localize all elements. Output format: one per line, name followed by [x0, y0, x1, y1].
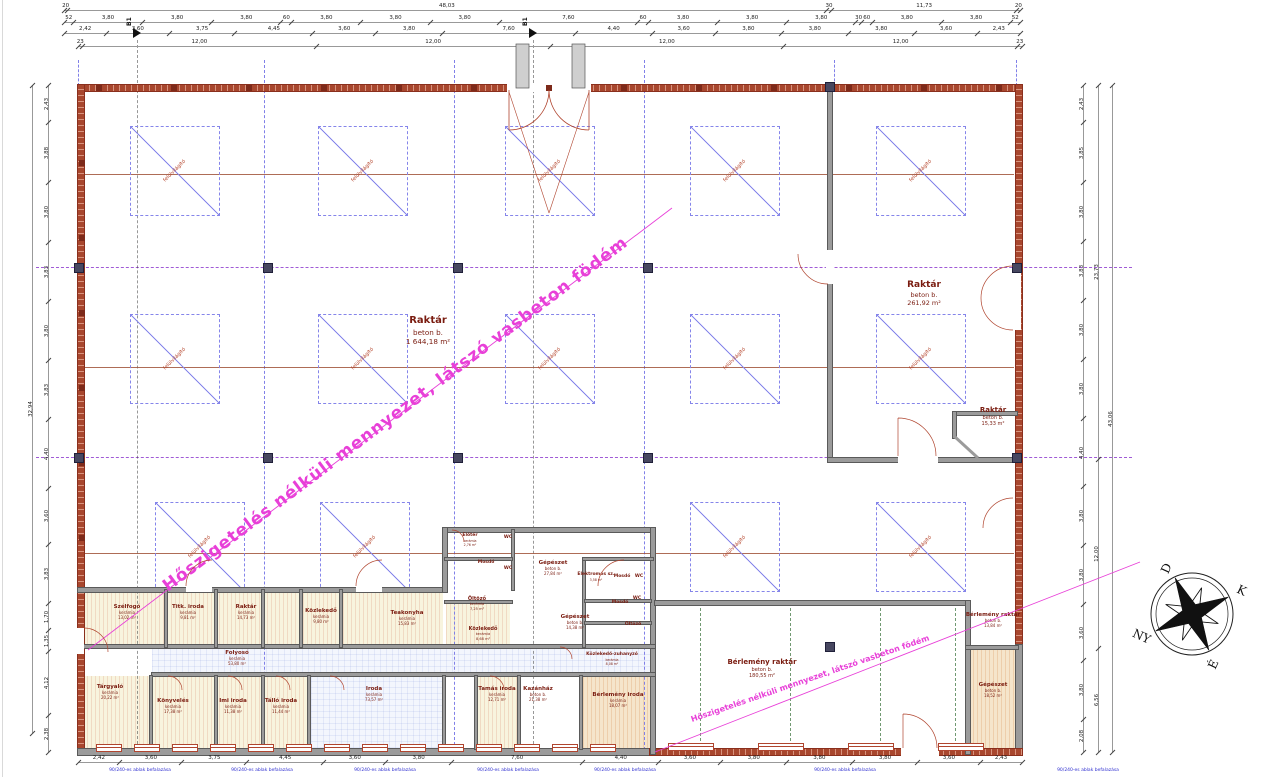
pilaster	[79, 535, 85, 541]
dim-right-mid	[1098, 85, 1099, 752]
dim-label: 3,60	[137, 755, 165, 761]
skylight-label: felülvilágító	[909, 159, 934, 184]
column	[644, 264, 652, 272]
room-area: 21,38 m²	[523, 698, 553, 703]
partition	[308, 676, 310, 749]
dim-label: 30	[815, 3, 843, 9]
dim-label: 7,60	[503, 755, 531, 761]
wall-east	[1016, 85, 1022, 647]
column	[264, 264, 272, 272]
pilaster	[321, 85, 327, 91]
dim-label: 3,80	[405, 755, 433, 761]
utility-line	[955, 608, 956, 746]
room-label: Kazánházbeton b.21,38 m²	[523, 686, 553, 703]
room-label: Gépészetbeton b.18,52 m²	[979, 682, 1008, 699]
dim-label: 3,60	[676, 755, 704, 761]
dim-label: 3,80	[1079, 198, 1085, 226]
skylight: felülvilágító	[690, 314, 780, 404]
dim-label: 2,08	[1079, 722, 1085, 750]
pilaster	[546, 85, 552, 91]
window-mark	[248, 744, 274, 752]
dim-label: 23	[1006, 39, 1034, 45]
wall-utility-left	[443, 528, 447, 592]
window-mark	[590, 744, 616, 752]
wall-opening	[826, 250, 834, 284]
room-area: 13,84 m²	[966, 624, 1020, 629]
pilaster	[996, 85, 1002, 91]
partition	[583, 558, 653, 560]
room-label: Tárgyalókerámia20,22 m²	[97, 684, 123, 701]
pilaster	[79, 160, 85, 166]
dim-top-inner	[64, 33, 1020, 34]
pilaster	[621, 85, 627, 91]
compass-major-star	[1156, 578, 1228, 650]
wall-opening	[898, 456, 938, 464]
dim-label: 3,80	[1079, 561, 1085, 589]
partition	[475, 676, 477, 749]
room-label: Raktárbeton b.1 644,18 m²	[406, 315, 450, 346]
room-label: Folyosókerámia53,80 m²	[225, 650, 249, 667]
room-area: 17,38 m²	[157, 710, 189, 715]
column	[1013, 264, 1021, 272]
window-annotation: 90/240-es ablak befalazása	[814, 768, 876, 773]
window-annotation: 90/240-es ablak befalazása	[477, 768, 539, 773]
window-mark	[362, 744, 388, 752]
pilaster	[171, 85, 177, 91]
room-label: Irodakerámia73,57 m²	[365, 686, 383, 703]
column	[454, 264, 462, 272]
room-area: 9,81 m²	[172, 616, 204, 621]
room-area: 13,02 m²	[114, 616, 141, 621]
wall-west	[78, 85, 84, 755]
dim-label: 48,03	[433, 3, 461, 9]
room-label: Gépészetbeton b.27,84 m²	[539, 560, 568, 577]
dim-label: 3,60	[330, 26, 358, 32]
room-area: 14,38 m²	[561, 626, 590, 631]
column	[264, 454, 272, 462]
dim-bottom	[78, 762, 1022, 763]
room-label: Raktárbeton b.15,33 m²	[980, 406, 1006, 427]
window-mark	[438, 744, 464, 752]
column	[75, 264, 83, 272]
dim-label: 4,12	[44, 669, 50, 697]
room-area: 53,80 m²	[225, 662, 249, 667]
dim-label: 3,80	[740, 755, 768, 761]
skylight-label: felülvilágító	[351, 159, 376, 184]
window-mark	[210, 744, 236, 752]
skylight: felülvilágító	[876, 126, 966, 216]
skylight: felülvilágító	[318, 314, 408, 404]
room-name: Közlekedő-zuhanyzó	[586, 652, 638, 658]
room-area: 3,58 m²	[577, 578, 614, 582]
room-label: WC	[635, 574, 643, 580]
dim-label: 2,43	[987, 755, 1015, 761]
room-area: 11,38 m²	[219, 710, 247, 715]
room-area: 27,84 m²	[539, 572, 568, 577]
column	[454, 454, 462, 462]
pilaster	[96, 85, 102, 91]
wall-opening	[901, 748, 939, 756]
dim-label: 60	[629, 15, 657, 21]
room-area: 2,76 m²	[462, 543, 477, 547]
wall-small-raktar-left	[953, 412, 956, 438]
dim-label: 3,88	[44, 139, 50, 167]
room-name: Raktár	[406, 315, 450, 328]
orange	[583, 676, 650, 748]
dim-label: 3,80	[738, 15, 766, 21]
dim-label: 12,00	[185, 39, 213, 45]
dim-label: 43,06	[1108, 405, 1114, 433]
dim-label: 4,40	[607, 755, 635, 761]
dim-label: 3,80	[734, 26, 762, 32]
room-label: Bérlemény raktárbeton b.13,84 m²	[966, 612, 1020, 629]
dim-label: 4,40	[1079, 439, 1085, 467]
pilaster	[79, 385, 85, 391]
column	[826, 83, 834, 91]
room-label: Öltözőkerámia7,25 m²	[468, 596, 486, 611]
room-name: Mosdó	[478, 560, 495, 566]
room-label: WC	[504, 566, 512, 572]
skylight: felülvilágító	[505, 314, 595, 404]
skylight: felülvilágító	[130, 314, 220, 404]
skylight: felülvilágító	[320, 502, 410, 592]
skylight: felülvilágító	[690, 126, 780, 216]
dim-label: 3,75	[188, 26, 216, 32]
grid-axis-vertical	[1016, 60, 1017, 86]
skylight-label: felülvilágító	[723, 535, 748, 560]
column	[75, 454, 83, 462]
dim-label: 3,80	[893, 15, 921, 21]
window-mark	[286, 744, 312, 752]
skylight: felülvilágító	[876, 314, 966, 404]
room-label: Tamás irodakerámia12,71 m²	[478, 686, 515, 703]
dim-label: 4,40	[600, 26, 628, 32]
compass-label-d: D	[1158, 561, 1175, 576]
room-area: 261,92 m²	[907, 299, 941, 307]
room-label: Mosdó	[614, 574, 631, 580]
room-label: Teakonyhakerámia15,83 m²	[391, 610, 424, 627]
window-mark	[96, 744, 122, 752]
window-mark	[400, 744, 426, 752]
window-mark	[938, 743, 984, 751]
room-area: 7,25 m²	[468, 607, 486, 611]
dim-label: 52	[55, 15, 83, 21]
dim-label: 12,00	[1094, 540, 1100, 568]
skylight-label: felülvilágító	[538, 159, 563, 184]
window-annotation: 90/240-es ablak befalazása	[594, 768, 656, 773]
room-area: 14,73 m²	[236, 616, 257, 621]
pilaster	[79, 310, 85, 316]
room-label: Bérlemény irodakerámia18,07 m²	[592, 692, 643, 709]
dim-label: 3,80	[163, 15, 191, 21]
room-area: 1 644,18 m²	[406, 337, 450, 346]
window-annotation: 90/240-es ablak befalazása	[109, 768, 171, 773]
wall-opening	[76, 628, 84, 654]
partition	[262, 590, 264, 647]
skylight-label: felülvilágító	[163, 347, 188, 372]
room-label: Mosdó	[478, 560, 495, 566]
dim-label: 2,42	[71, 26, 99, 32]
room-material: beton b.	[907, 291, 941, 299]
skylight: felülvilágító	[318, 126, 408, 216]
room-label: WC	[633, 596, 641, 602]
skylight: felülvilágító	[505, 126, 595, 216]
dim-label: 3,83	[1079, 257, 1085, 285]
room-label: WC	[504, 535, 512, 541]
wall-opening	[356, 584, 382, 592]
canopy-column-right	[572, 44, 585, 88]
room-label: Imi irodakerámia11,38 m²	[219, 698, 247, 715]
room-label: Mosdó	[612, 600, 629, 606]
dim-label: 4,45	[260, 26, 288, 32]
dim-label: 3,60	[341, 755, 369, 761]
dim-label: 3,80	[1079, 676, 1085, 704]
dim-label: 12,00	[887, 39, 915, 45]
dim-top-total	[64, 10, 1020, 11]
room-area: 8,68 m²	[469, 637, 498, 641]
room-name: Bérlemény raktár	[727, 658, 796, 667]
room-area: 180,55 m²	[727, 673, 796, 679]
compass-label-k: K	[1235, 582, 1250, 599]
room-label: Előtérkerámia2,76 m²	[462, 533, 477, 547]
dim-label: 3,75	[200, 755, 228, 761]
room-name: Mosdó	[614, 574, 631, 580]
room-label: Könyveléskerámia17,38 m²	[157, 698, 189, 715]
room-name: WC	[504, 566, 512, 572]
dim-label: 3,80	[669, 15, 697, 21]
partition	[443, 676, 445, 749]
skylight: felülvilágító	[130, 126, 220, 216]
room-area: 18,52 m²	[979, 694, 1008, 699]
dim-label: 3,80	[807, 15, 835, 21]
dim-label: 3,80	[871, 755, 899, 761]
wall-opening	[1013, 266, 1021, 330]
window-mark	[514, 744, 540, 752]
skylight-label: felülvilágító	[723, 347, 748, 372]
partition	[340, 590, 342, 647]
wall-opening	[598, 584, 624, 592]
dim-label: 52	[1001, 15, 1029, 21]
dim-label: 3,85	[1079, 139, 1085, 167]
grid-axis-vertical	[78, 60, 79, 86]
skylight-label: felülvilágító	[909, 535, 934, 560]
window-mark	[552, 744, 578, 752]
room-label: Közlekedő-zuhanyzókerámia8,08 m²	[586, 652, 638, 666]
room-label: Raktárbeton b.261,92 m²	[907, 280, 941, 307]
room-name: Előtér	[462, 533, 477, 539]
pilaster	[396, 85, 402, 91]
dim-label: 3,80	[867, 26, 895, 32]
dim-label: 3,80	[395, 26, 423, 32]
room-name: Öltöző	[625, 622, 641, 628]
dim-label: 4,40	[44, 440, 50, 468]
window-mark	[476, 744, 502, 752]
window-mark	[758, 743, 804, 751]
angled-wall	[954, 436, 978, 458]
dim-label: 2,42	[85, 755, 113, 761]
dim-label: 3,80	[232, 15, 260, 21]
room-label: Közlekedőkerámia9,80 m²	[305, 608, 337, 625]
room-area: 18,07 m²	[592, 704, 643, 709]
dim-label: 23	[66, 39, 94, 45]
room-name: Raktár	[907, 280, 941, 291]
dim-label: 4,45	[271, 755, 299, 761]
room-area: 15,83 m²	[391, 622, 424, 627]
dim-label: 3,60	[932, 26, 960, 32]
skylight-label: felülvilágító	[723, 159, 748, 184]
column	[826, 643, 834, 651]
room-name: Mosdó	[612, 600, 629, 606]
dim-label: 20	[1004, 3, 1032, 9]
partition	[518, 676, 520, 749]
room-label: Raktárkerámia14,73 m²	[236, 604, 257, 621]
window-mark	[172, 744, 198, 752]
room-area: 9,80 m²	[305, 620, 337, 625]
partition	[512, 530, 514, 590]
pilaster	[846, 85, 852, 91]
dim-label: 3,80	[451, 15, 479, 21]
dim-label: 7,60	[495, 26, 523, 32]
pilaster	[921, 85, 927, 91]
dim-label: 2,43	[985, 26, 1013, 32]
pilaster	[471, 85, 477, 91]
grid-axis-horizontal	[36, 267, 1132, 268]
pilaster	[79, 235, 85, 241]
dim-label: 3,80	[1079, 502, 1085, 530]
compass-label-ny: NY	[1130, 626, 1154, 647]
room-label: Szélfogókerámia13,02 m²	[114, 604, 141, 621]
floor-plan-canvas: felülvilágítófelülvilágítófelülvilágítóf…	[0, 0, 1280, 777]
column	[1013, 454, 1021, 462]
skylight: felülvilágító	[690, 502, 780, 592]
dim-label: 3,80	[44, 317, 50, 345]
window-mark	[324, 744, 350, 752]
room-area: 8,08 m²	[586, 662, 638, 666]
wall-berlemeny-top	[655, 601, 970, 605]
room-label: Bérlemény raktárbeton b.180,55 m²	[727, 658, 796, 679]
dim-label: 20	[52, 3, 80, 9]
dim-label: 7,60	[554, 15, 582, 21]
wall-utility-top	[443, 528, 655, 532]
dim-label: 12,00	[653, 39, 681, 45]
page-edge	[2, 0, 3, 777]
dim-label: 23,73	[1094, 258, 1100, 286]
dim-label: 3,60	[124, 26, 152, 32]
column	[644, 454, 652, 462]
partition	[262, 676, 264, 749]
room-name: WC	[633, 596, 641, 602]
dim-top-detail	[64, 22, 1020, 23]
dim-label: 3,60	[935, 755, 963, 761]
room-area: 11,44 m²	[265, 710, 297, 715]
compass-rose: D K É NY	[1130, 561, 1249, 671]
pilaster	[771, 85, 777, 91]
room-label: Elektromos sz.3,58 m²	[577, 572, 614, 582]
dim-label: 3,80	[44, 198, 50, 226]
room-area: 12,71 m²	[478, 698, 515, 703]
ceiling-note-secondary: Hőszigetelés nélküli mennyezet, látszó v…	[689, 633, 930, 724]
dim-label: 2,43	[1079, 90, 1085, 118]
dim-label: 3,80	[801, 26, 829, 32]
wall-gepeszet-top	[966, 646, 1018, 649]
wall-east-lower	[1016, 645, 1022, 755]
room-area: 73,57 m²	[365, 698, 383, 703]
pilaster	[696, 85, 702, 91]
room-area: 20,22 m²	[97, 696, 123, 701]
dim-label: 60	[272, 15, 300, 21]
window-annotation: 90/240-es ablak befalazása	[231, 768, 293, 773]
room-label: Titk. irodakerámia9,81 m²	[172, 604, 204, 621]
dim-label: 3,60	[1079, 619, 1085, 647]
wall-office-right	[651, 528, 655, 754]
skylight-label: felülvilágító	[188, 535, 213, 560]
partition	[300, 590, 302, 647]
partition	[580, 676, 582, 749]
skylight-label: felülvilágító	[163, 159, 188, 184]
window-mark	[848, 743, 894, 751]
dim-label: 6,56	[1094, 686, 1100, 714]
dim-label: 3,80	[805, 755, 833, 761]
dim-label: 3,83	[44, 258, 50, 286]
room-label: Öltöző	[625, 622, 641, 628]
dim-label: 12,00	[419, 39, 447, 45]
room-material: beton b.	[406, 328, 450, 337]
room-label: Közlekedőkerámia8,68 m²	[469, 626, 498, 641]
dim-label: 3,60	[44, 502, 50, 530]
dim-label: 3,80	[1079, 316, 1085, 344]
dim-label: 2,43	[44, 90, 50, 118]
window-mark	[134, 744, 160, 752]
dim-label: 2,38	[44, 720, 50, 748]
window-annotation: 90/240-es ablak befalazása	[1057, 768, 1119, 773]
window-mark	[668, 743, 714, 751]
dim-label: 3,80	[382, 15, 410, 21]
room-name: Raktár	[980, 406, 1006, 415]
dim-label: 3,80	[312, 15, 340, 21]
room-name: Elektromos sz.	[577, 572, 614, 578]
dim-label: 3,60	[670, 26, 698, 32]
skylight-label: felülvilágító	[909, 347, 934, 372]
room-name: WC	[635, 574, 643, 580]
utility-line	[880, 608, 881, 746]
dim-label: 3,80	[1079, 375, 1085, 403]
dim-label: 3,83	[44, 560, 50, 588]
room-label: Gépészetbeton b.14,38 m²	[561, 614, 590, 631]
partition	[165, 590, 167, 647]
dim-label: 11,73	[910, 3, 938, 9]
partition	[215, 590, 217, 647]
dim-label: 3,83	[44, 376, 50, 404]
dim-label: 3,80	[962, 15, 990, 21]
room-label: Tálló irodakerámia11,44 m²	[265, 698, 297, 715]
compass-label-e: É	[1204, 657, 1221, 671]
grid-axis-vertical	[834, 60, 835, 86]
dim-label: 60	[853, 15, 881, 21]
partition	[150, 676, 152, 749]
dim-label: 3,80	[94, 15, 122, 21]
wall-opening	[186, 584, 212, 592]
room-area: 15,33 m²	[980, 421, 1006, 427]
compass-minor-star	[1166, 588, 1219, 641]
skylight: felülvilágító	[155, 502, 245, 592]
utility-line	[700, 608, 701, 746]
room-name: WC	[504, 535, 512, 541]
skylight-label: felülvilágító	[353, 535, 378, 560]
partition	[215, 676, 217, 749]
canopy-column-left	[516, 44, 529, 88]
pilaster	[246, 85, 252, 91]
dim-label: 32,94	[28, 395, 34, 423]
